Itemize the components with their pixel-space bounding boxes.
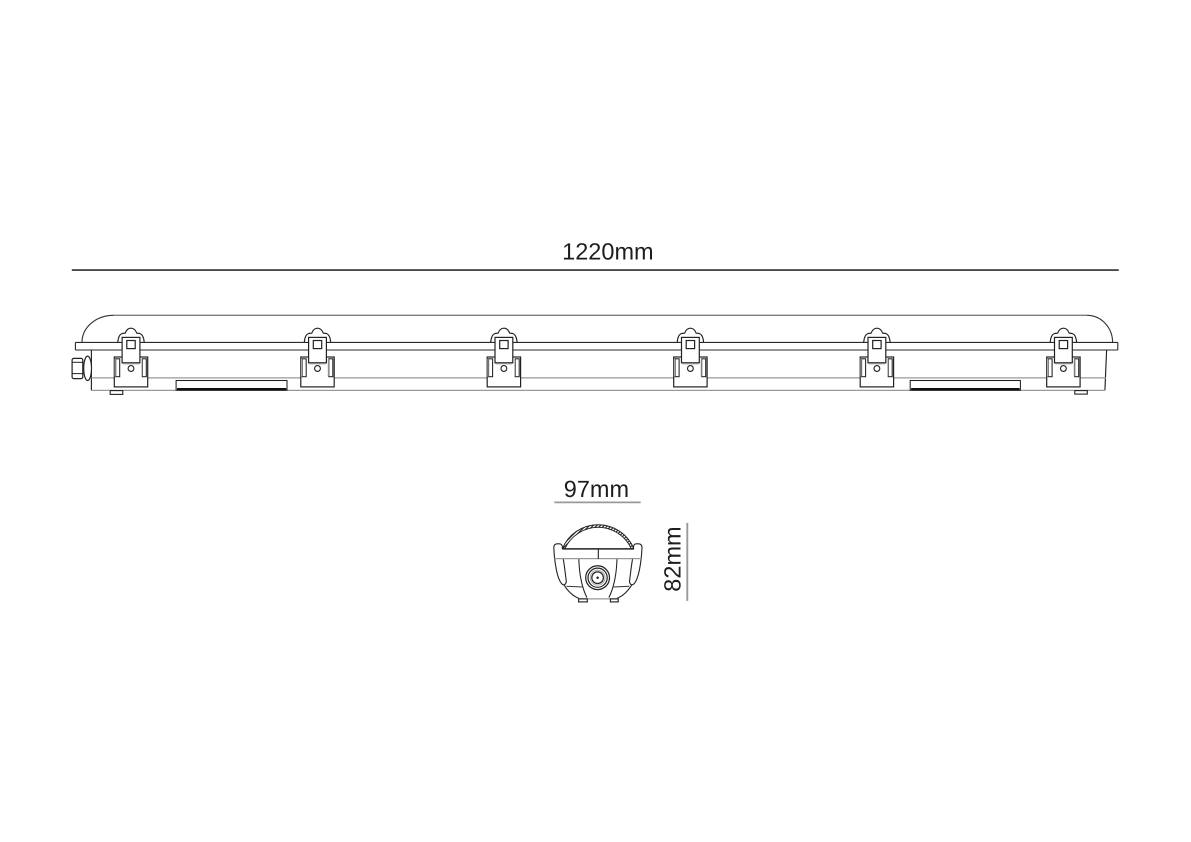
svg-text:82mm: 82mm [659,526,685,591]
svg-text:97mm: 97mm [564,476,629,502]
svg-text:1220mm: 1220mm [562,239,653,265]
